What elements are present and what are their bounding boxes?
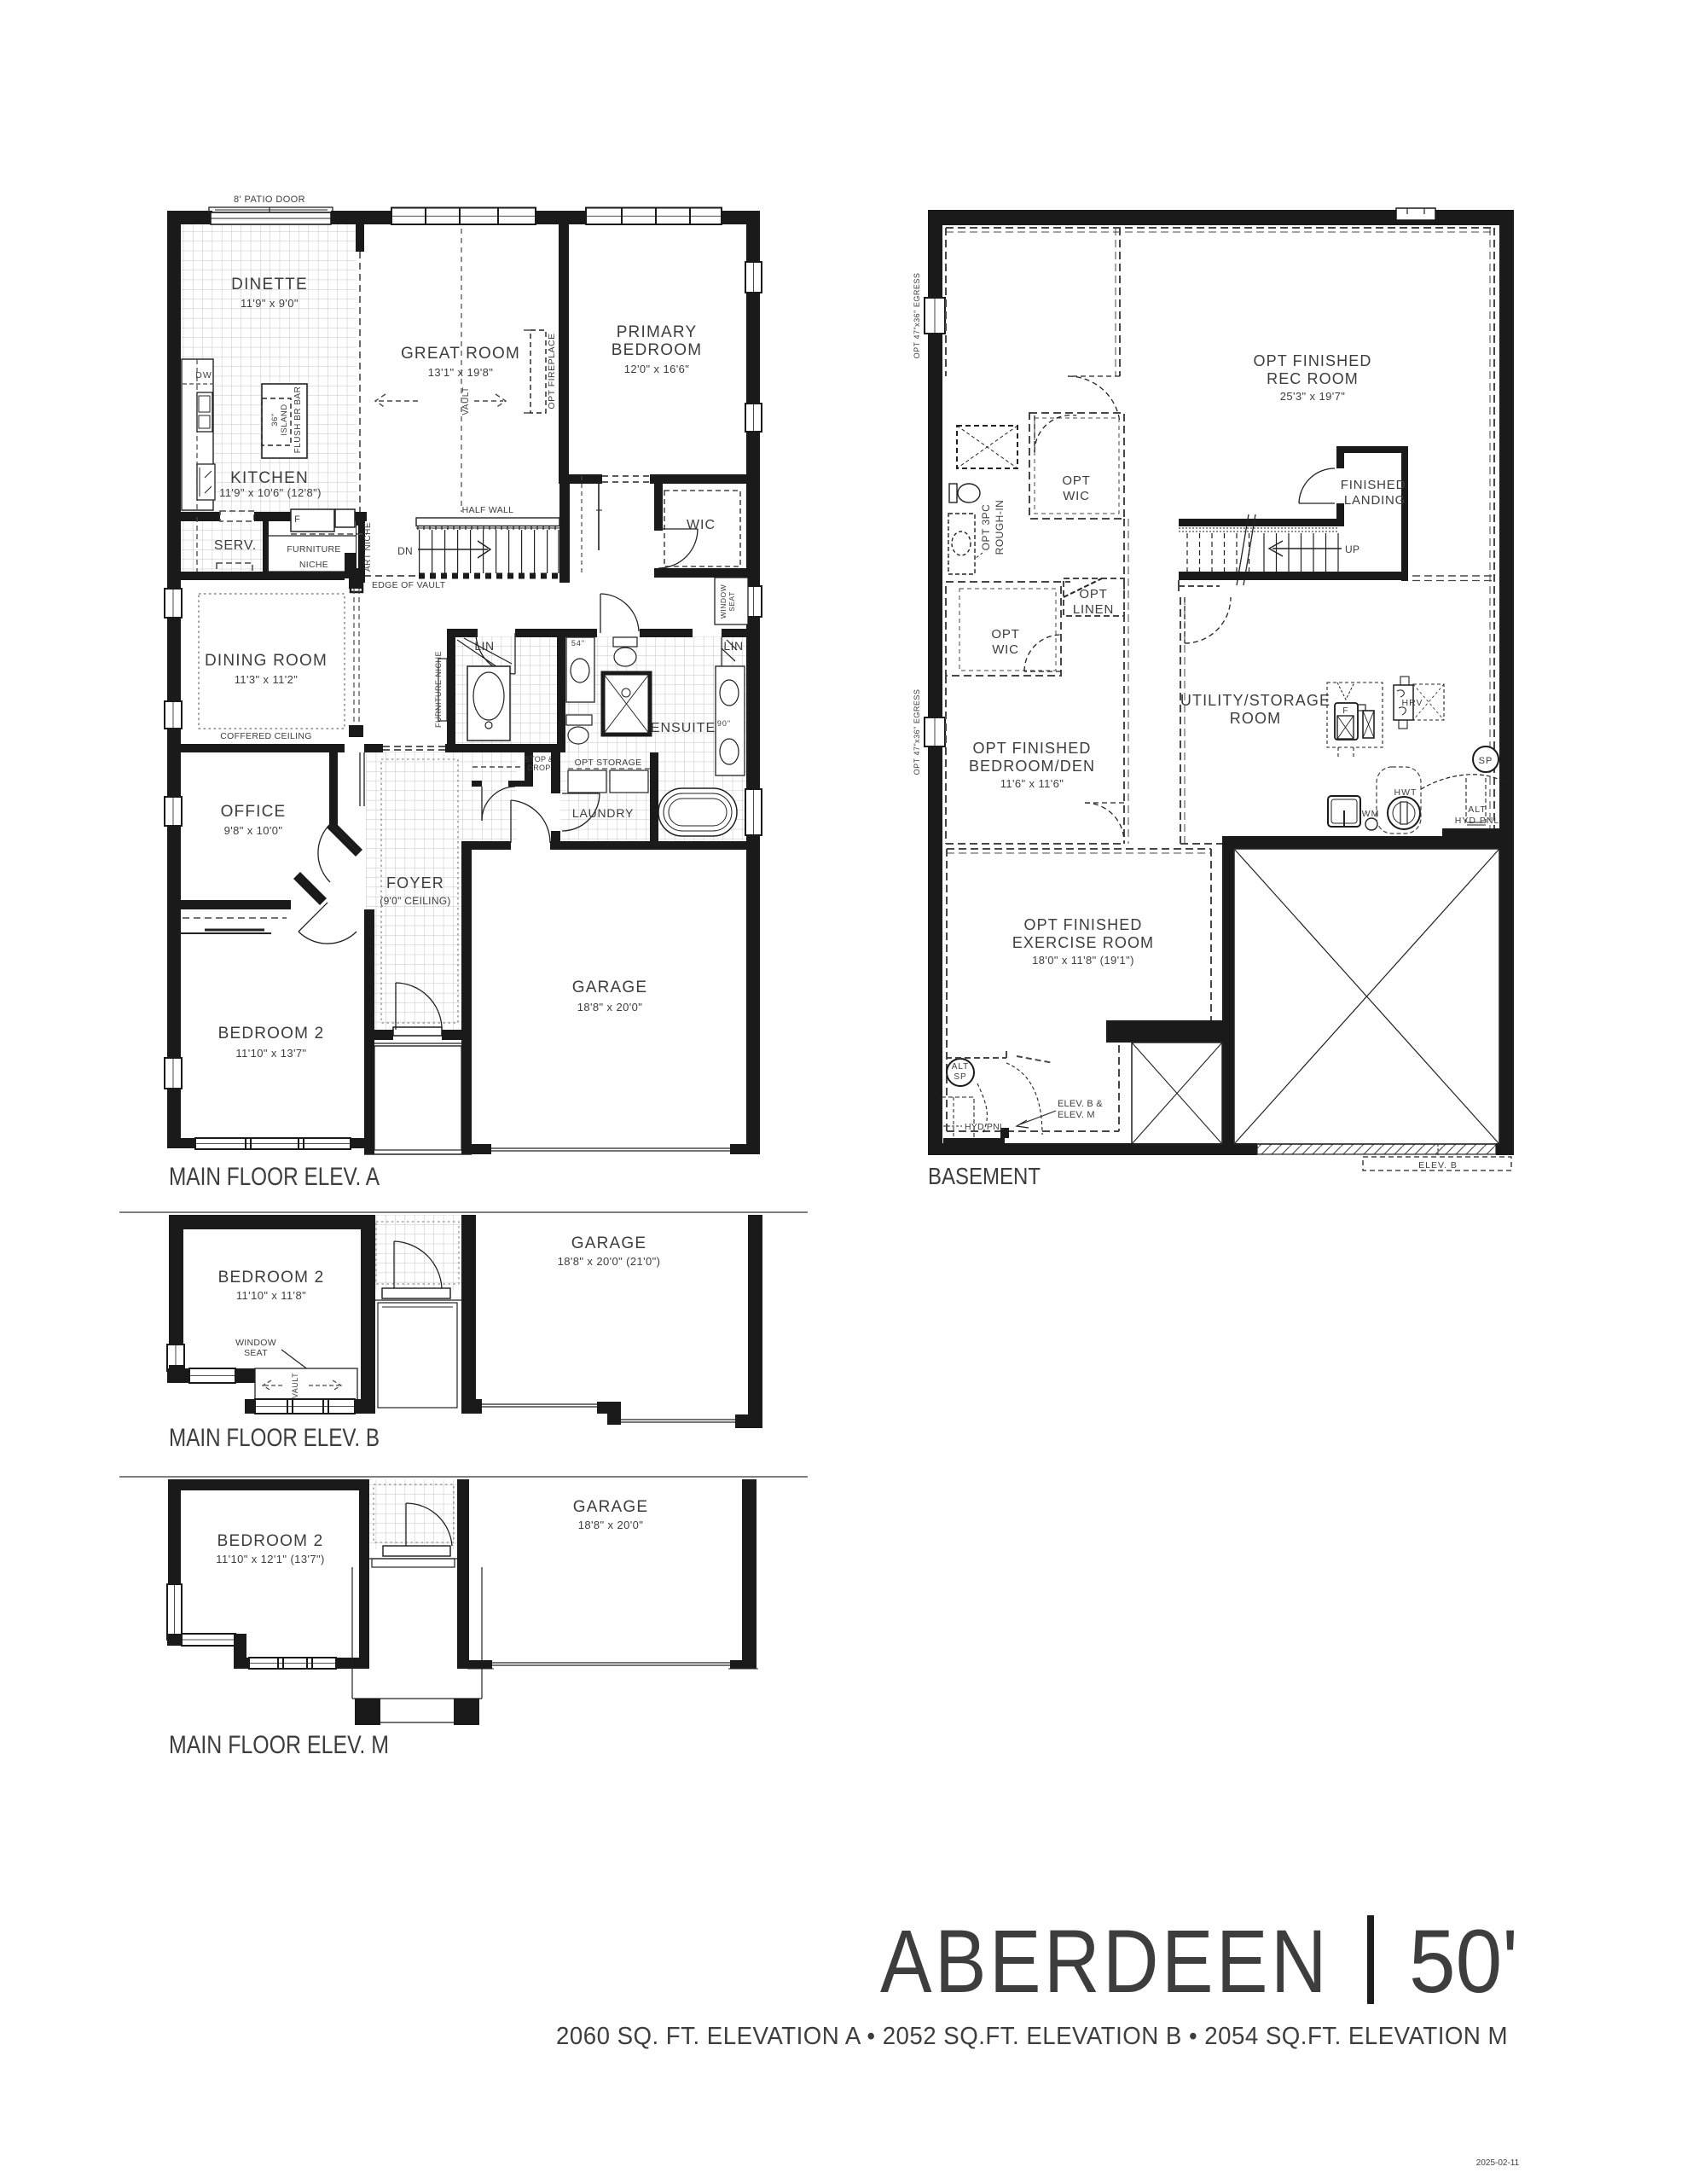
svg-text:UTILITY/STORAGE: UTILITY/STORAGE	[1180, 692, 1330, 709]
svg-text:DW: DW	[195, 370, 212, 380]
svg-text:FLUSH BR BAR: FLUSH BR BAR	[293, 386, 303, 454]
svg-text:HYD PNL: HYD PNL	[965, 1122, 1005, 1132]
svg-text:ELEV. B &: ELEV. B &	[1058, 1099, 1103, 1109]
svg-text:WIC: WIC	[992, 642, 1019, 657]
svg-text:ALT: ALT	[1468, 804, 1486, 815]
svg-text:90": 90"	[717, 719, 731, 728]
svg-text:BEDROOM 2: BEDROOM 2	[217, 1532, 324, 1550]
svg-text:ART NICHE: ART NICHE	[363, 522, 373, 572]
svg-text:LANDING: LANDING	[1344, 493, 1406, 508]
svg-text:FURNITURE: FURNITURE	[287, 544, 340, 555]
svg-text:54": 54"	[571, 639, 585, 648]
svg-text:FOYER: FOYER	[386, 874, 444, 892]
svg-text:11'9" x 10'6" (12'8"): 11'9" x 10'6" (12'8")	[219, 486, 322, 499]
svg-text:EXERCISE ROOM: EXERCISE ROOM	[1012, 934, 1154, 951]
svg-text:KITCHEN: KITCHEN	[230, 469, 309, 487]
svg-text:11'9" x 9'0": 11'9" x 9'0"	[241, 297, 299, 310]
svg-text:MAIN FLOOR ELEV. A: MAIN FLOOR ELEV. A	[169, 1163, 380, 1191]
svg-text:OPT FIREPLACE: OPT FIREPLACE	[547, 333, 557, 409]
svg-text:BASEMENT: BASEMENT	[928, 1163, 1041, 1189]
svg-text:11'10" x 12'1" (13'7"): 11'10" x 12'1" (13'7")	[216, 1553, 324, 1565]
svg-text:NICHE: NICHE	[299, 560, 328, 570]
svg-text:VAULT: VAULT	[461, 386, 471, 415]
svg-text:36": 36"	[270, 413, 280, 426]
svg-text:ISLAND: ISLAND	[280, 404, 289, 435]
svg-text:LINEN: LINEN	[1073, 602, 1114, 617]
svg-text:STOP &: STOP &	[525, 755, 554, 764]
svg-text:OFFICE: OFFICE	[221, 803, 287, 821]
svg-text:HALF WALL: HALF WALL	[462, 505, 514, 515]
svg-text:UP: UP	[1345, 543, 1359, 555]
svg-text:2060 SQ. FT. ELEVATION A • 205: 2060 SQ. FT. ELEVATION A • 2052 SQ.FT. E…	[556, 2023, 1508, 2050]
svg-text:BEDROOM: BEDROOM	[612, 341, 703, 359]
svg-text:HYD PNL: HYD PNL	[1455, 816, 1500, 826]
svg-text:F: F	[1342, 706, 1348, 716]
svg-text:WINDOW: WINDOW	[719, 584, 728, 619]
svg-text:WINDOW: WINDOW	[235, 1338, 276, 1348]
svg-text:WIC: WIC	[687, 518, 716, 532]
svg-text:OPT FINISHED: OPT FINISHED	[1024, 916, 1143, 933]
svg-text:(9'0" CEILING): (9'0" CEILING)	[380, 895, 450, 907]
svg-text:OPT 47"x36" EGRESS: OPT 47"x36" EGRESS	[913, 273, 921, 359]
svg-text:13'1" x 19'8": 13'1" x 19'8"	[428, 366, 494, 379]
svg-text:GARAGE: GARAGE	[572, 979, 648, 996]
svg-text:ENSUITE: ENSUITE	[651, 721, 716, 735]
svg-text:COFFERED CEILING: COFFERED CEILING	[220, 731, 311, 741]
svg-text:8' PATIO DOOR: 8' PATIO DOOR	[234, 195, 305, 205]
svg-text:18'8" x 20'0": 18'8" x 20'0"	[577, 1001, 643, 1014]
svg-text:11'6" x 11'6": 11'6" x 11'6"	[1000, 777, 1064, 790]
svg-text:EDGE OF VAULT: EDGE OF VAULT	[372, 580, 446, 590]
svg-text:F: F	[294, 514, 301, 525]
svg-text:LAUNDRY: LAUNDRY	[572, 806, 634, 820]
svg-text:2025-02-11: 2025-02-11	[1476, 2158, 1520, 2168]
svg-text:MAIN FLOOR ELEV. M: MAIN FLOOR ELEV. M	[169, 1731, 389, 1759]
svg-text:ELEV. B: ELEV. B	[1418, 1160, 1458, 1170]
svg-text:12'0" x 16'6": 12'0" x 16'6"	[624, 363, 690, 375]
svg-text:DINING ROOM: DINING ROOM	[205, 652, 328, 670]
svg-text:ROUGH-IN: ROUGH-IN	[994, 500, 1006, 555]
svg-text:18'8" x 20'0" (21'0"): 18'8" x 20'0" (21'0")	[558, 1255, 661, 1268]
svg-text:OPT 47"x36" EGRESS: OPT 47"x36" EGRESS	[913, 689, 921, 775]
svg-text:11'3" x 11'2": 11'3" x 11'2"	[235, 673, 299, 686]
svg-text:GARAGE: GARAGE	[573, 1498, 649, 1516]
svg-text:ELEV. M: ELEV. M	[1058, 1110, 1095, 1120]
svg-text:GARAGE: GARAGE	[571, 1234, 647, 1252]
svg-text:OPT: OPT	[991, 627, 1019, 642]
svg-text:BEDROOM 2: BEDROOM 2	[218, 1269, 325, 1287]
svg-text:BEDROOM 2: BEDROOM 2	[218, 1025, 325, 1043]
svg-text:SEAT: SEAT	[728, 591, 736, 612]
svg-text:ABERDEEN: ABERDEEN	[880, 1912, 1330, 2012]
svg-text:18'0" x 11'8" (19'1"): 18'0" x 11'8" (19'1")	[1032, 954, 1134, 967]
svg-text:11'10" x 11'8": 11'10" x 11'8"	[236, 1289, 306, 1302]
svg-text:BEDROOM/DEN: BEDROOM/DEN	[969, 758, 1095, 775]
svg-text:ROOM: ROOM	[1230, 710, 1281, 727]
svg-text:DINETTE: DINETTE	[231, 276, 308, 293]
svg-text:LIN: LIN	[723, 639, 743, 653]
svg-text:FURNITURE NICHE: FURNITURE NICHE	[434, 651, 443, 728]
svg-text:SEAT: SEAT	[244, 1348, 268, 1358]
svg-text:GREAT ROOM: GREAT ROOM	[401, 345, 520, 363]
svg-text:VAULT: VAULT	[291, 1373, 299, 1398]
svg-text:SP: SP	[1479, 756, 1493, 766]
svg-text:OPT 3PC: OPT 3PC	[980, 504, 992, 551]
svg-text:11'10" x 13'7": 11'10" x 13'7"	[235, 1047, 306, 1060]
svg-text:DROP: DROP	[528, 764, 551, 772]
svg-text:50': 50'	[1409, 1912, 1518, 2012]
svg-text:9'8" x 10'0": 9'8" x 10'0"	[224, 824, 283, 837]
svg-text:OPT FINISHED: OPT FINISHED	[1254, 352, 1372, 369]
svg-text:HRV: HRV	[1402, 698, 1423, 708]
svg-text:WIC: WIC	[1063, 489, 1090, 503]
svg-text:MAIN FLOOR ELEV. B: MAIN FLOOR ELEV. B	[169, 1424, 380, 1452]
svg-text:SERV.: SERV.	[214, 538, 257, 553]
svg-text:OPT: OPT	[1062, 473, 1090, 488]
svg-text:ALT: ALT	[952, 1062, 970, 1072]
svg-text:OPT STORAGE: OPT STORAGE	[575, 758, 642, 768]
svg-text:FINISHED: FINISHED	[1341, 478, 1406, 492]
svg-text:REC ROOM: REC ROOM	[1267, 370, 1359, 387]
svg-text:DN: DN	[397, 545, 413, 557]
svg-text:18'8" x 20'0": 18'8" x 20'0"	[578, 1519, 644, 1531]
svg-text:SP: SP	[954, 1072, 966, 1082]
svg-text:OPT FINISHED: OPT FINISHED	[973, 740, 1092, 757]
svg-text:25'3" x 19'7": 25'3" x 19'7"	[1280, 390, 1346, 403]
svg-text:OPT: OPT	[1079, 587, 1107, 601]
svg-text:PRIMARY: PRIMARY	[617, 323, 698, 341]
